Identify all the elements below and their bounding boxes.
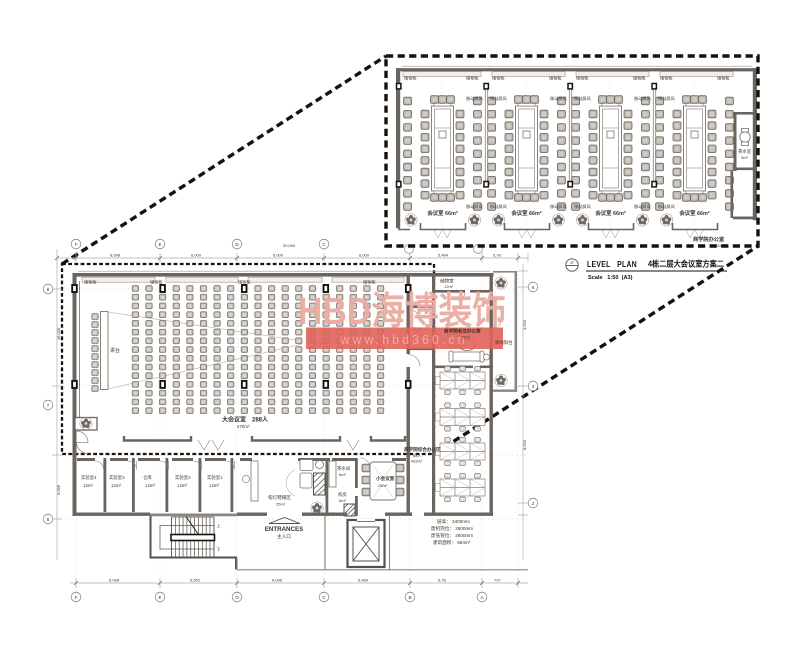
svg-text:会议室 66m²: 会议室 66m² (511, 209, 541, 217)
svg-text:12m²: 12m² (444, 284, 454, 289)
svg-text:B: B (408, 595, 411, 600)
svg-text:会议室 66m²: 会议室 66m² (427, 209, 457, 217)
svg-text:储物柜: 储物柜 (549, 75, 562, 82)
svg-text:储物柜: 储物柜 (404, 75, 417, 82)
svg-text:25m²: 25m² (276, 502, 286, 507)
svg-text:储物柜: 储物柜 (633, 75, 646, 82)
svg-text:6,000: 6,000 (273, 253, 284, 258)
svg-text:88人: 88人 (413, 453, 421, 458)
svg-text:上: 上 (217, 522, 221, 528)
svg-text:727: 727 (494, 578, 501, 583)
svg-text:LEVEL PLAN: LEVEL PLAN (587, 259, 637, 269)
svg-text:6,000: 6,000 (191, 253, 202, 258)
svg-text:下: 下 (217, 547, 221, 552)
svg-text:12m²: 12m² (209, 483, 220, 488)
svg-text:6: 6 (532, 285, 535, 290)
svg-text:大会议室 288人: 大会议室 288人 (222, 416, 269, 424)
svg-text:移动屏风: 移动屏风 (634, 95, 652, 102)
svg-text:商学院综合办公区: 商学院综合办公区 (404, 446, 441, 453)
svg-text:6,098: 6,098 (272, 578, 283, 583)
svg-text:储物柜: 储物柜 (492, 75, 505, 82)
svg-text:8,640: 8,640 (522, 439, 527, 450)
svg-text:茶水室: 茶水室 (738, 148, 752, 154)
svg-text:移动屏风: 移动屏风 (658, 203, 676, 210)
svg-text:6,098: 6,098 (109, 578, 120, 583)
svg-text:储物柜: 储物柜 (717, 75, 730, 82)
svg-text:ENTRANCES: ENTRANCES (265, 526, 304, 533)
svg-text:5,484: 5,484 (438, 253, 449, 258)
svg-text:移动屏风: 移动屏风 (634, 203, 652, 210)
svg-text:6: 6 (47, 287, 50, 292)
svg-text:储物柜: 储物柜 (466, 75, 479, 82)
svg-text:2: 2 (532, 501, 535, 506)
svg-text:5,502: 5,502 (190, 578, 201, 583)
svg-text:讲台: 讲台 (110, 347, 120, 354)
svg-text:商学院老总办公室: 商学院老总办公室 (444, 328, 481, 335)
svg-text:主入口: 主入口 (277, 533, 291, 540)
svg-text:移动屏风: 移动屏风 (490, 95, 508, 102)
svg-text:移动屏风: 移动屏风 (574, 203, 592, 210)
svg-text:会议室 66m²: 会议室 66m² (595, 209, 625, 217)
svg-text:25m²: 25m² (378, 483, 388, 488)
svg-text:E: E (158, 595, 161, 600)
svg-text:F: F (75, 595, 78, 600)
svg-text:HBD海博装饰: HBD海博装饰 (298, 291, 506, 333)
svg-text:移动屏风: 移动屏风 (658, 95, 676, 102)
svg-text:6m²: 6m² (339, 472, 347, 477)
svg-text:建筑面积： 564m²: 建筑面积： 564m² (433, 539, 471, 546)
svg-text:4: 4 (532, 384, 535, 389)
svg-text:F: F (75, 242, 78, 247)
svg-text:12m²: 12m² (177, 483, 188, 488)
svg-text:6,098: 6,098 (56, 484, 61, 495)
svg-text:462m²: 462m² (411, 459, 423, 464)
svg-text:270m²: 270m² (237, 424, 250, 429)
svg-text:6m²: 6m² (339, 498, 347, 503)
svg-text:小会议室: 小会议室 (376, 475, 395, 482)
svg-text:16,000: 16,000 (56, 327, 61, 340)
svg-text:机房: 机房 (338, 491, 347, 498)
svg-text:储物柜: 储物柜 (84, 279, 97, 286)
svg-text:5,484: 5,484 (358, 578, 369, 583)
svg-text:实验室1: 实验室1 (207, 474, 223, 481)
svg-text:储物柜: 储物柜 (576, 75, 589, 82)
svg-text:储物柜: 储物柜 (660, 75, 673, 82)
svg-text:休闲阳台: 休闲阳台 (495, 339, 513, 346)
svg-text:6,000: 6,000 (359, 253, 370, 258)
svg-text:30,000: 30,000 (283, 243, 296, 248)
svg-text:移动屏风: 移动屏风 (466, 203, 484, 210)
svg-text:甸灯鞋帽区: 甸灯鞋帽区 (268, 494, 291, 501)
svg-text:商学院办公室: 商学院办公室 (693, 235, 724, 243)
svg-text:Scale 1:50 (A3): Scale 1:50 (A3) (588, 275, 633, 281)
svg-text:12m²: 12m² (83, 483, 94, 488)
svg-text:6,098: 6,098 (110, 253, 121, 258)
svg-text:4,640: 4,640 (522, 319, 527, 330)
svg-text:E: E (158, 242, 161, 247)
svg-text:层高： 3400mm: 层高： 3400mm (437, 518, 470, 525)
svg-text:实验室4: 实验室4 (81, 474, 97, 481)
svg-text:12m²: 12m² (145, 483, 156, 488)
svg-text:5,78: 5,78 (493, 253, 502, 258)
svg-text:实验室2: 实验室2 (175, 474, 191, 481)
svg-text:仓库: 仓库 (143, 474, 152, 481)
svg-text:7: 7 (47, 403, 50, 408)
svg-text:茶水间: 茶水间 (337, 465, 350, 472)
svg-text:www.hbd360.cn: www.hbd360.cn (339, 333, 467, 347)
svg-text:移动屏风: 移动屏风 (574, 95, 592, 102)
svg-text:移动屏风: 移动屏风 (490, 203, 508, 210)
svg-text:会议室 66m²: 会议室 66m² (679, 209, 709, 217)
svg-text:8: 8 (47, 517, 50, 522)
svg-text:5,78: 5,78 (438, 578, 447, 583)
svg-text:废低管位： 2600mm: 废低管位： 2600mm (431, 532, 473, 539)
svg-text:实验室3: 实验室3 (109, 474, 125, 481)
svg-text:9m²: 9m² (741, 155, 749, 160)
svg-text:移动屏风: 移动屏风 (466, 95, 484, 102)
svg-text:废机完位： 2900mm: 废机完位： 2900mm (431, 525, 473, 532)
svg-text:12m²: 12m² (111, 483, 122, 488)
svg-text:4栋二层大会议室方案二: 4栋二层大会议室方案二 (648, 259, 724, 269)
svg-text:移动屏风: 移动屏风 (550, 95, 568, 102)
svg-text:移动屏风: 移动屏风 (550, 203, 568, 210)
svg-text:25m²: 25m² (461, 335, 471, 340)
svg-text:储物柜: 储物柜 (363, 279, 376, 286)
